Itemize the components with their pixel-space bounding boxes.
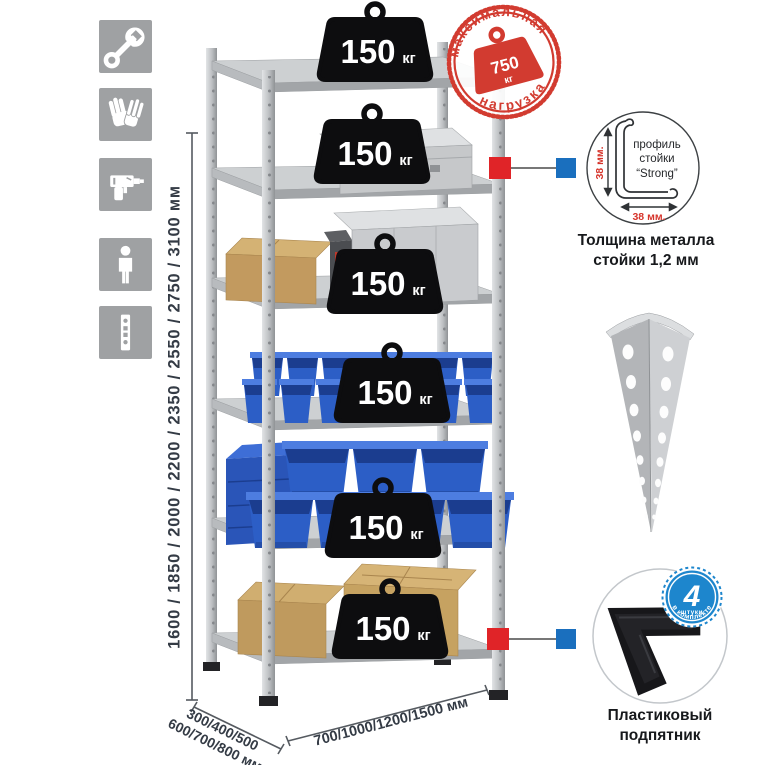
height-dimension-label: 1600 / 1850 / 2000 / 2200 / 2350 / 2550 … xyxy=(166,185,185,649)
profile-label-3: “Strong” xyxy=(636,168,678,180)
weight-value: 150 xyxy=(348,509,403,546)
storage-bin xyxy=(350,441,420,497)
thickness-caption-line1: Толщина металла xyxy=(565,231,727,251)
profile-label-2: стойки xyxy=(639,153,674,165)
plastic-foot-image: 4 штуки в комплекте xyxy=(593,567,727,704)
callout-connector-top xyxy=(489,157,576,179)
weight-value: 150 xyxy=(350,265,405,302)
weight-unit: кг xyxy=(402,51,415,67)
weight-unit: кг xyxy=(399,153,412,169)
product-infographic: 150 кг 150 кг 150 кг 150 кг 150 кг xyxy=(0,0,765,765)
post-foot xyxy=(489,690,508,700)
callout-connector-bottom xyxy=(487,628,576,650)
weight-unit: кг xyxy=(412,283,425,299)
storage-bin xyxy=(246,492,316,548)
cardboard-box-small xyxy=(226,238,332,304)
foot-caption-line1: Пластиковый xyxy=(578,706,742,726)
profile-label-1: профиль xyxy=(633,139,681,151)
foot-caption-line2: подпятник xyxy=(578,726,742,746)
weight-badge-1: 150 кг xyxy=(319,4,431,80)
red-marker xyxy=(487,628,509,650)
profile-dim-vertical: 38 мм. xyxy=(594,146,606,179)
thickness-caption: Толщина металла стойки 1,2 мм xyxy=(565,231,727,271)
weight-unit: кг xyxy=(417,628,430,644)
profile-dim-horizontal: 38 мм. xyxy=(632,211,665,223)
blue-marker xyxy=(556,158,576,178)
max-load-stamp: максимальная нагрузка 750 кг xyxy=(434,0,574,132)
blue-marker xyxy=(556,629,576,649)
red-marker xyxy=(489,157,511,179)
angle-post-image xyxy=(606,313,694,532)
weight-unit: кг xyxy=(410,527,423,543)
weight-value: 150 xyxy=(357,374,412,411)
weight-badge-2: 150 кг xyxy=(316,106,428,182)
storage-bin xyxy=(418,441,488,497)
weight-value: 150 xyxy=(355,610,410,647)
weight-value: 150 xyxy=(340,33,395,70)
thickness-caption-line2: стойки 1,2 мм xyxy=(565,251,727,271)
storage-bin xyxy=(282,441,352,497)
height-dimension-line xyxy=(186,133,198,700)
rack-scene: 150 кг 150 кг 150 кг 150 кг 150 кг xyxy=(0,0,765,765)
foot-caption: Пластиковый подпятник xyxy=(578,706,742,746)
weight-unit: кг xyxy=(419,392,432,408)
post-foot xyxy=(259,696,278,706)
quantity-badge: 4 штуки в комплекте xyxy=(662,567,723,628)
post-profile-diagram: 38 мм. 38 мм. профиль стойки “Strong” xyxy=(587,112,699,224)
weight-value: 150 xyxy=(337,135,392,172)
